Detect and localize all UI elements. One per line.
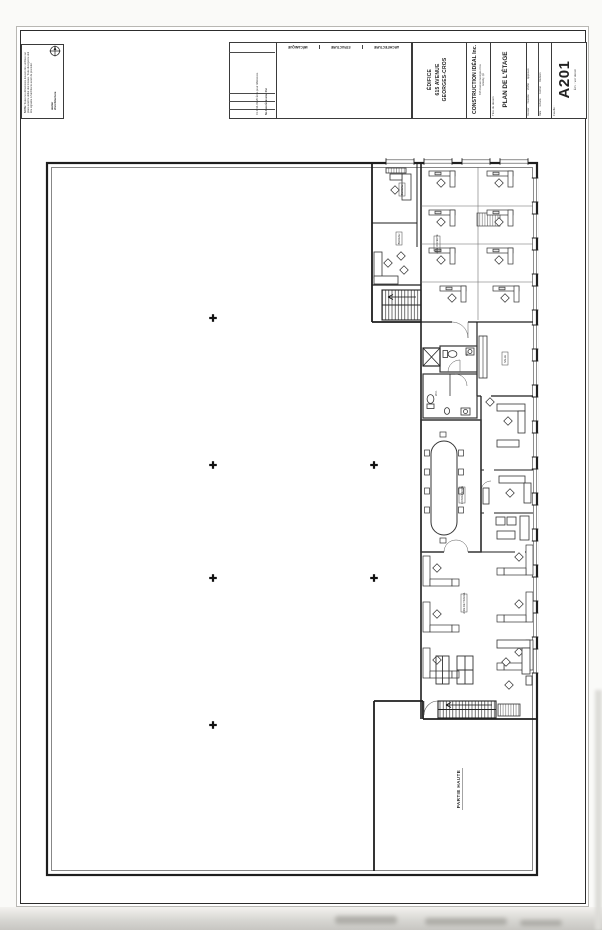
cabinets	[436, 656, 473, 684]
project-line2: 615 AVENUE	[435, 43, 443, 116]
room-label: W.C.	[434, 390, 438, 396]
project-line3: GEORGES-CROS	[442, 43, 450, 116]
sheet-scale: Éch. : voir dessin	[573, 43, 577, 116]
note-text: NOTE: Toutes les dimensions doivent être…	[24, 47, 45, 113]
private-offices	[374, 168, 411, 284]
fields-content: Dossier Dessiné Vérifié Approuvé Date Éc…	[527, 43, 550, 116]
sheet-number: A201	[556, 43, 573, 116]
firm-name: atelier d'architecture	[51, 52, 62, 110]
room-label: W.C.	[465, 350, 469, 356]
fields-row2: Date Échelle Format Révision	[539, 43, 550, 116]
stair-upper	[382, 290, 421, 320]
scan-bottom-band	[0, 907, 602, 930]
revision-values: 01 2014-03-26 Émis pour références	[256, 44, 264, 115]
room-label: SALLE	[503, 355, 507, 363]
client-name: CONSTRUCTION IDÉAL Inc.	[472, 43, 478, 116]
sheet-number-area: Feuille : A201 Éch. : voir dessin	[552, 43, 584, 116]
scan-right-streak	[595, 690, 602, 930]
band-workstations	[423, 545, 533, 678]
room-label: BUREAU	[397, 233, 401, 244]
scan-blot	[335, 916, 397, 924]
consultant-strip	[276, 42, 412, 119]
drawing-title: PLAN DE L'ÉTAGE	[502, 43, 509, 116]
cubicle-workstations	[429, 171, 519, 302]
room-label: AIRE OUVERTE	[435, 234, 439, 254]
stair-small	[498, 704, 520, 716]
fields-row1: Dossier Dessiné Vérifié Approuvé	[527, 43, 539, 116]
drawing-title-area: Titre du dessin PLAN DE L'ÉTAGE	[491, 43, 525, 116]
revision-headers: No Date Émission Par	[265, 44, 274, 115]
room-label: AIRE DE TRAVAIL	[462, 592, 466, 614]
consultant-label: MÉCANIQUE	[288, 45, 307, 49]
partie-haute-label: PARTIE HAUTE	[456, 768, 463, 810]
client-info: CONSTRUCTION IDÉAL Inc. 615 Avenue Georg…	[467, 43, 489, 116]
scanned-drawing-page: BUREAU BUREAU AIRE OUVERTE W.C. SALLE W.…	[0, 0, 602, 930]
scan-blot	[520, 920, 562, 926]
column-markers	[209, 314, 378, 729]
washroom-1	[440, 346, 477, 372]
drawing-title-label: Titre du dessin	[491, 43, 495, 116]
shaft	[423, 348, 440, 366]
building-outline	[47, 163, 537, 875]
project-line1: ÉDIFICE	[427, 43, 435, 116]
consultant-labels: MÉCANIQUE STRUCTURE ARCHITECTURE	[276, 42, 410, 52]
note-body: Toutes les dimensions doivent être vérif…	[24, 52, 33, 113]
stair-main	[438, 701, 496, 718]
project-title: ÉDIFICE 615 AVENUE GEORGES-CROS	[413, 43, 464, 116]
washroom-2	[423, 374, 477, 418]
consultant-label: STRUCTURE	[331, 45, 351, 49]
scan-blot	[425, 918, 507, 925]
right-offices	[483, 398, 531, 540]
room-label: BUREAU	[400, 184, 404, 195]
client-address2: Granby, Qc	[482, 43, 485, 116]
consultant-label: ARCHITECTURE	[374, 45, 399, 49]
svg-text:PARTIE HAUTE: PARTIE HAUTE	[456, 770, 461, 808]
storage-room	[479, 336, 487, 378]
floor-plan-svg: BUREAU BUREAU AIRE OUVERTE W.C. SALLE W.…	[0, 0, 602, 930]
conference-room	[421, 420, 481, 554]
